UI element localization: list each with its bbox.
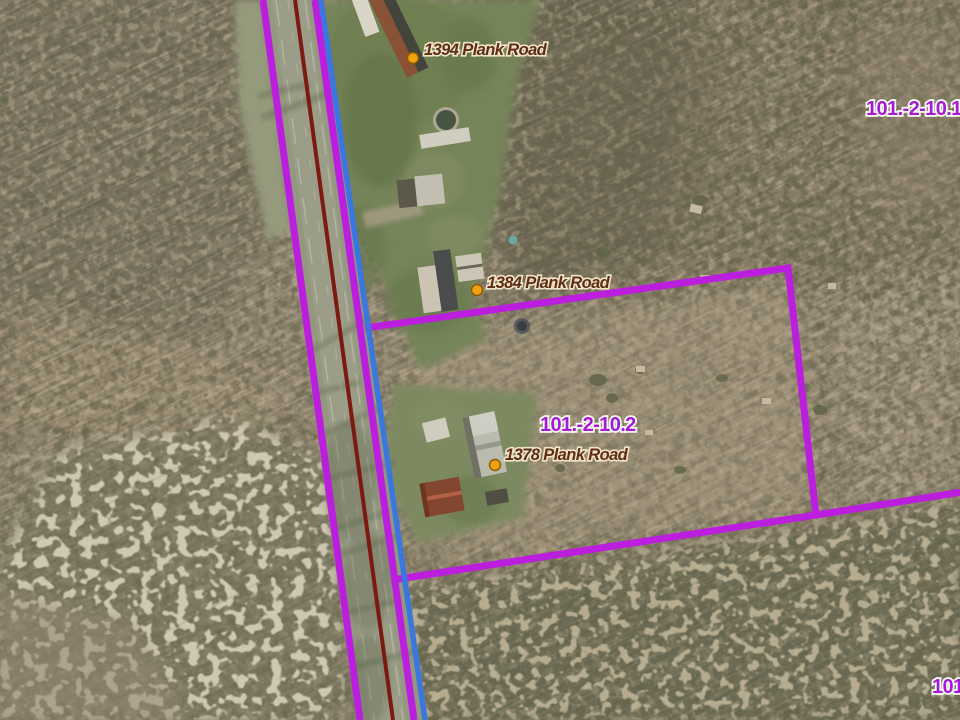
svg-text:1378 Plank Road: 1378 Plank Road	[505, 446, 629, 464]
svg-text:101.-2-10.1: 101.-2-10.1	[866, 98, 960, 120]
svg-text:101.: 101.	[932, 676, 960, 698]
svg-text:101.-2-10.2: 101.-2-10.2	[540, 414, 636, 436]
svg-text:1394 Plank Road: 1394 Plank Road	[424, 41, 548, 59]
svg-text:1384 Plank Road: 1384 Plank Road	[487, 274, 611, 292]
